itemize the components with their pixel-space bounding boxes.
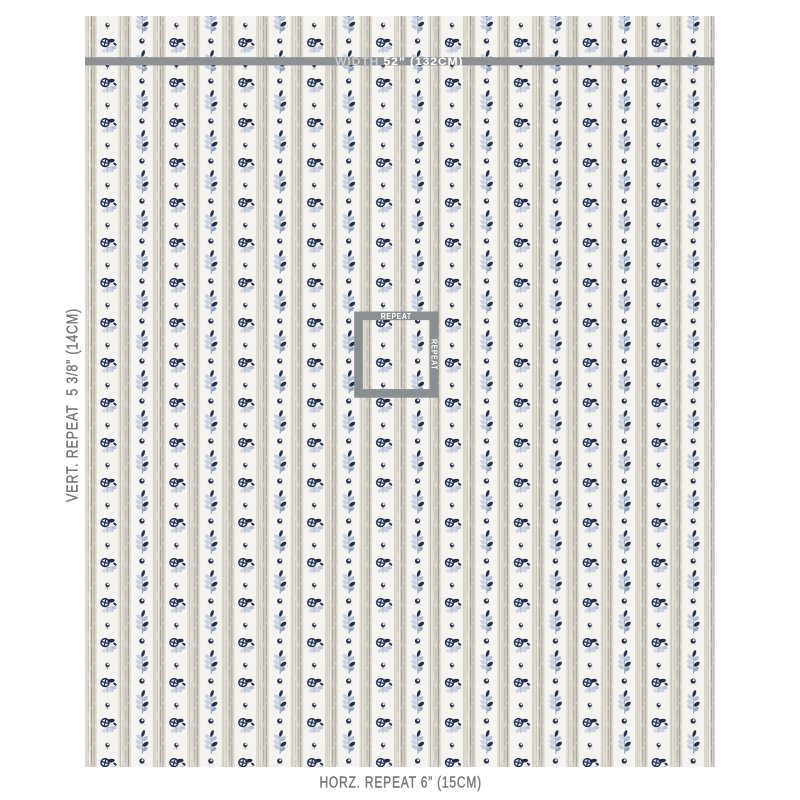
- svg-text:VERT. REPEAT 5 3/8” (14CM): VERT. REPEAT 5 3/8” (14CM): [64, 308, 81, 502]
- svg-text:WIDTH 52” (132CM): WIDTH 52” (132CM): [335, 56, 464, 68]
- svg-text:HORZ. REPEAT 6” (15CM): HORZ. REPEAT 6” (15CM): [319, 774, 482, 791]
- svg-text:REPEAT: REPEAT: [429, 339, 439, 370]
- svg-text:REPEAT: REPEAT: [381, 311, 412, 321]
